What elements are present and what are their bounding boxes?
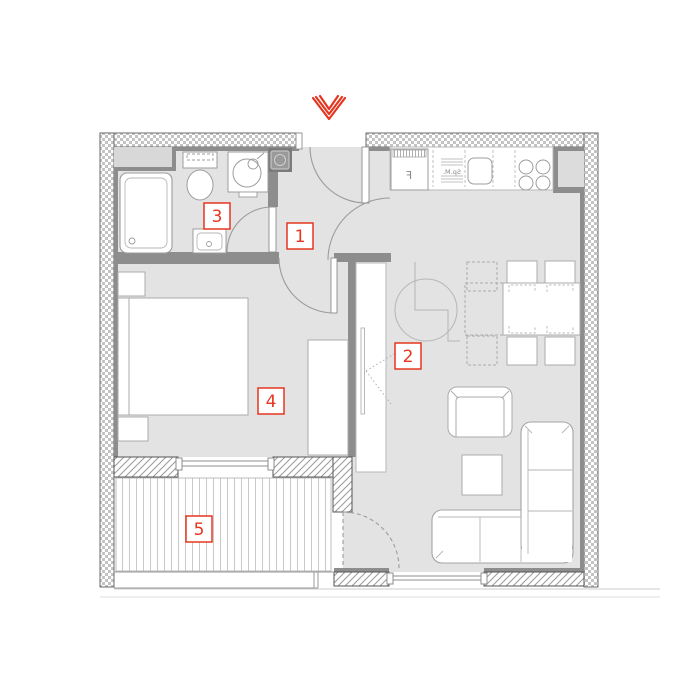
entrance-jamb [296,133,302,149]
wall-kitchen-shaft-bottom [553,187,584,193]
wall-left [100,133,114,587]
balcony-railing [114,572,334,588]
kitchen-shaft-niche [558,151,584,187]
room-label-1-text: 1 [295,227,306,247]
room-label-2-text: 2 [403,347,414,367]
wall-bottom-left [334,572,389,586]
dining-chair-2 [545,261,575,283]
ground-lines [100,589,660,597]
kitchen: F Sp.M. [390,147,553,190]
bedroom-wardrobe [308,340,348,455]
nightstand-bottom [118,417,148,441]
wall-hall-bottom [334,253,391,262]
room-label-5: 5 [186,516,212,542]
armchair [448,387,512,437]
room-label-3-text: 3 [212,207,223,227]
wall-bedroom-balcony-left [114,457,178,477]
room-label-2: 2 [395,343,421,369]
wall-kitchen-shaft-left [553,147,558,193]
dishwasher-label: Sp.M. [443,168,461,176]
room-label-4: 4 [258,388,284,414]
washing-machine [228,152,268,197]
bedroom-door-leaf [331,258,337,313]
bathroom-sink [193,229,226,253]
wall-top-left [100,133,299,147]
wall-bathroom-bottom [114,252,279,264]
room-label-4-text: 4 [266,392,277,412]
room-label-3: 3 [204,203,230,229]
floor-plan-page: F Sp.M. [0,0,700,700]
wall-bedroom-living [348,258,356,457]
bed [118,298,248,415]
kitchen-sink [468,158,492,184]
floor-plan: F Sp.M. [0,0,700,700]
room-label-1: 1 [287,223,313,249]
wall-bottom-right [484,572,584,586]
wall-top-right [366,133,598,147]
nightstand-top [118,272,145,296]
vent-shaft [268,148,292,172]
wall-balcony-living [333,457,352,512]
entrance-chevron-icon [313,96,345,119]
closet-sliding-door [361,328,365,414]
hall-closet [356,263,386,472]
living-room-window [387,573,487,584]
entrance-door-leaf [362,147,369,203]
room-label-5-text: 5 [194,520,205,540]
bathroom-door-leaf [269,207,276,252]
balcony [114,478,334,588]
dining-chair-3 [507,337,537,365]
bathtub [120,173,172,253]
fridge: F [391,149,428,190]
wall-right [584,133,598,587]
dining-table [503,283,580,335]
dining-chair-4 [545,337,575,365]
coffee-table [462,455,502,495]
balcony-decking [116,478,331,571]
bathtub-niche [114,147,176,171]
dining-chair-1 [507,261,537,283]
fridge-label: F [406,169,412,182]
